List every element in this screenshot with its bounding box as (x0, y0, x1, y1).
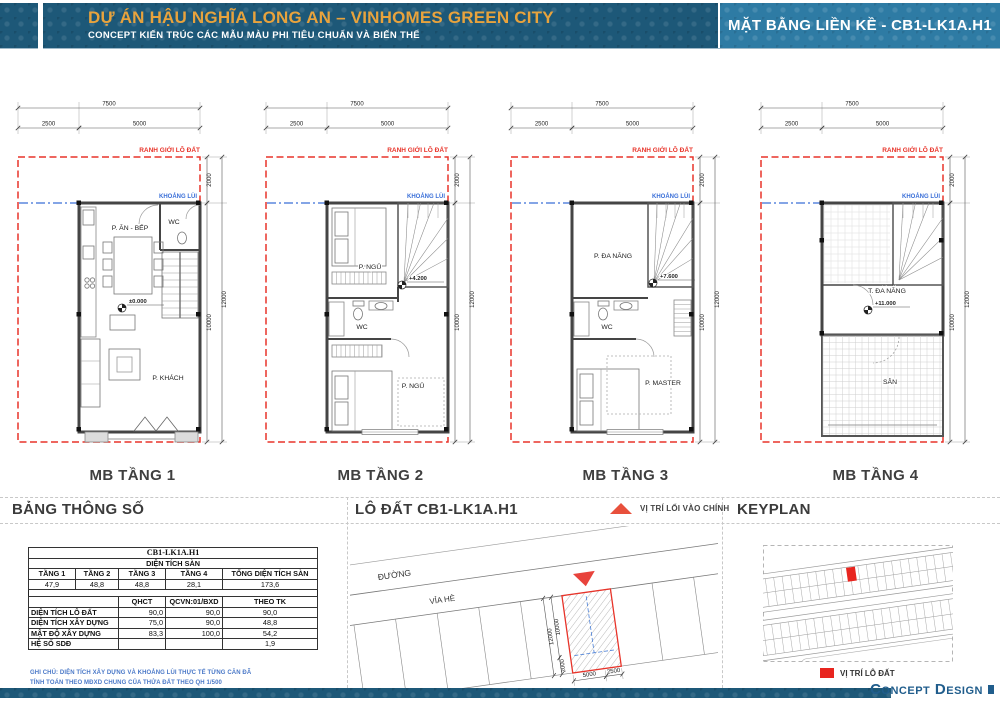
floor-plan-panel-tang1: 750025005000RANH GIỚI LÔ ĐẤTKHOẢNG LÙI20… (10, 88, 255, 500)
svg-text:P. MASTER: P. MASTER (645, 380, 681, 387)
header-corner-block (0, 3, 38, 49)
floor-plan-title-tang2: MB TẦNG 2 (258, 467, 503, 484)
table-value: 100,0 (166, 628, 223, 639)
table-value: 90,0 (223, 607, 318, 618)
svg-text:12000: 12000 (965, 290, 971, 307)
svg-text:±0.000: ±0.000 (129, 299, 147, 305)
svg-text:P. NGỦ: P. NGỦ (402, 381, 425, 390)
svg-text:12000: 12000 (715, 290, 721, 307)
table-value: 75,0 (119, 618, 166, 629)
svg-text:7500: 7500 (102, 102, 116, 108)
floor-plan-title-tang3: MB TẦNG 3 (503, 467, 748, 484)
table-row-label: DIỆN TÍCH LÔ ĐẤT (29, 607, 119, 618)
section-title-spec-table: BẢNG THÔNG SỐ (12, 501, 144, 518)
svg-text:5000: 5000 (876, 122, 890, 128)
svg-text:2500: 2500 (290, 122, 304, 128)
header-bar: DỰ ÁN HẬU NGHĨA LONG AN – VINHOMES GREEN… (43, 3, 1000, 49)
table-floor-col: TỔNG DIỆN TÍCH SÀN (223, 569, 318, 580)
table-floor-col: TẦNG 2 (76, 569, 119, 580)
svg-text:WC: WC (601, 324, 612, 331)
table-lot-id: CB1-LK1A.H1 (29, 548, 318, 559)
table-notes: GHI CHÚ: DIỆN TÍCH XÂY DỰNG VÀ KHOẢNG LÙ… (30, 668, 251, 688)
svg-text:12000: 12000 (470, 290, 476, 307)
sheet-title-block: MẶT BẰNG LIỀN KỀ - CB1-LK1A.H1 (718, 3, 1000, 48)
svg-text:RANH GIỚI LÔ ĐẤT: RANH GIỚI LÔ ĐẤT (632, 144, 693, 154)
divider-vert-1 (347, 497, 348, 688)
table-std-col: QCVN:01/BXD (166, 597, 223, 608)
svg-text:KHOẢNG LÙI: KHOẢNG LÙI (407, 193, 445, 200)
floor-plan-title-tang1: MB TẦNG 1 (10, 467, 255, 484)
svg-text:12000: 12000 (222, 290, 228, 307)
svg-text:5000: 5000 (626, 122, 640, 128)
svg-text:2000: 2000 (950, 173, 956, 187)
table-floor-col: TẦNG 3 (119, 569, 166, 580)
table-value: 83,3 (119, 628, 166, 639)
svg-text:5000: 5000 (133, 122, 147, 128)
project-subtitle: CONCEPT KIẾN TRÚC CÁC MẪU MÀU PHI TIÊU C… (88, 30, 420, 41)
lot-position-legend: VỊ TRÍ LÔ ĐẤT (820, 668, 895, 678)
svg-text:ĐƯỜNG: ĐƯỜNG (377, 568, 412, 583)
floor-plan-drawing-tang1: 750025005000RANH GIỚI LÔ ĐẤTKHOẢNG LÙI20… (10, 88, 255, 500)
floor-plan-drawing-tang4: 750025005000RANH GIỚI LÔ ĐẤTKHOẢNG LÙI20… (753, 88, 998, 500)
table-floor-area: 47,9 (29, 579, 76, 590)
svg-text:SÂN: SÂN (883, 377, 897, 386)
svg-text:5000: 5000 (381, 122, 395, 128)
svg-text:2000: 2000 (700, 173, 706, 187)
svg-text:WC: WC (168, 219, 179, 226)
svg-text:10000: 10000 (207, 313, 213, 330)
svg-text:T. ĐA NĂNG: T. ĐA NĂNG (868, 286, 906, 295)
floor-plan-panel-tang4: 750025005000RANH GIỚI LÔ ĐẤTKHOẢNG LÙI20… (753, 88, 998, 500)
lot-position-label: VỊ TRÍ LÔ ĐẤT (840, 669, 895, 678)
svg-text:RANH GIỚI LÔ ĐẤT: RANH GIỚI LÔ ĐẤT (882, 144, 943, 154)
table-row-label: MẬT ĐỘ XÂY DỰNG (29, 628, 119, 639)
svg-text:10000: 10000 (950, 313, 956, 330)
svg-text:RANH GIỚI LÔ ĐẤT: RANH GIỚI LÔ ĐẤT (387, 144, 448, 154)
footer-strip (0, 688, 891, 698)
table-row-label: HỆ SỐ SDĐ (29, 639, 119, 650)
svg-text:7500: 7500 (350, 102, 364, 108)
svg-text:+4.200: +4.200 (409, 276, 427, 282)
svg-text:2500: 2500 (535, 122, 549, 128)
table-value: 90,0 (166, 607, 223, 618)
table-floor-col: TẦNG 1 (29, 569, 76, 580)
spec-table: CB1-LK1A.H1DIỆN TÍCH SÀNTẦNG 1TẦNG 2TẦNG… (28, 547, 318, 650)
svg-text:7500: 7500 (845, 102, 859, 108)
section-title-lot: LÔ ĐẤT CB1-LK1A.H1 (355, 501, 518, 518)
table-value (166, 639, 223, 650)
svg-text:VỈA HÈ: VỈA HÈ (429, 594, 456, 607)
svg-text:P. KHÁCH: P. KHÁCH (152, 373, 183, 382)
floor-plan-drawing-tang3: 750025005000RANH GIỚI LÔ ĐẤTKHOẢNG LÙI20… (503, 88, 748, 500)
svg-text:10000: 10000 (455, 313, 461, 330)
svg-text:10000: 10000 (554, 618, 562, 636)
section-title-keyplan: KEYPLAN (737, 501, 811, 518)
table-floor-area: 48,8 (119, 579, 166, 590)
svg-text:+11.000: +11.000 (875, 301, 896, 307)
table-std-col: QHCT (119, 597, 166, 608)
svg-text:KHOẢNG LÙI: KHOẢNG LÙI (159, 193, 197, 200)
floor-plan-panel-tang2: 750025005000RANH GIỚI LÔ ĐẤTKHOẢNG LÙI20… (258, 88, 503, 500)
table-floor-area: 28,1 (166, 579, 223, 590)
svg-text:KHOẢNG LÙI: KHOẢNG LÙI (652, 193, 690, 200)
table-value (119, 639, 166, 650)
project-title: DỰ ÁN HẬU NGHĨA LONG AN – VINHOMES GREEN… (88, 8, 554, 28)
sheet-title: MẶT BẰNG LIỀN KỀ - CB1-LK1A.H1 (728, 17, 992, 34)
svg-text:12000: 12000 (547, 627, 555, 645)
divider-top (0, 497, 1000, 498)
page: DỰ ÁN HẬU NGHĨA LONG AN – VINHOMES GREEN… (0, 0, 1000, 706)
svg-text:+7.600: +7.600 (660, 274, 678, 280)
table-value: 1,9 (223, 639, 318, 650)
table-floor-col: TẦNG 4 (166, 569, 223, 580)
svg-text:2500: 2500 (785, 122, 799, 128)
entrance-legend-label: VỊ TRÍ LỐI VÀO CHÍNH (640, 504, 729, 513)
svg-text:2000: 2000 (455, 173, 461, 187)
svg-text:P. ĐA NĂNG: P. ĐA NĂNG (594, 251, 632, 260)
entrance-legend: VỊ TRÍ LỐI VÀO CHÍNH (610, 503, 729, 514)
brand-text: Concept Design (870, 681, 983, 698)
lot-site-plan: ĐƯỜNGVỈA HÈ1200010000200050002500 (350, 526, 718, 688)
table-floor-area: 173,6 (223, 579, 318, 590)
svg-text:P. NGỦ: P. NGỦ (359, 262, 382, 271)
divider-vert-2 (722, 497, 723, 688)
table-value: 54,2 (223, 628, 318, 639)
svg-text:RANH GIỚI LÔ ĐẤT: RANH GIỚI LÔ ĐẤT (139, 144, 200, 154)
divider-bottom (0, 523, 1000, 524)
table-floor-area: 48,8 (76, 579, 119, 590)
brand-logo: Concept Design (870, 681, 994, 698)
svg-text:10000: 10000 (700, 313, 706, 330)
table-value: 90,0 (119, 607, 166, 618)
keyplan-map (763, 545, 953, 662)
svg-text:2000: 2000 (559, 658, 567, 673)
svg-text:2500: 2500 (42, 122, 56, 128)
floor-plan-title-tang4: MB TẦNG 4 (753, 467, 998, 484)
svg-text:2000: 2000 (207, 173, 213, 187)
svg-text:WC: WC (356, 324, 367, 331)
table-row-label: DIỆN TÍCH XÂY DỰNG (29, 618, 119, 629)
brand-square-icon (988, 685, 994, 694)
table-value: 48,8 (223, 618, 318, 629)
svg-text:P. ĂN - BẾP: P. ĂN - BẾP (112, 222, 149, 232)
floor-plan-panel-tang3: 750025005000RANH GIỚI LÔ ĐẤTKHOẢNG LÙI20… (503, 88, 748, 500)
table-blank (29, 597, 119, 608)
table-area-header: DIỆN TÍCH SÀN (29, 558, 318, 569)
note-line-1: GHI CHÚ: DIỆN TÍCH XÂY DỰNG VÀ KHOẢNG LÙ… (30, 668, 251, 678)
lot-position-square-icon (820, 668, 834, 678)
table-std-col: THEO TK (223, 597, 318, 608)
table-value: 90,0 (166, 618, 223, 629)
svg-text:7500: 7500 (595, 102, 609, 108)
floor-plan-drawing-tang2: 750025005000RANH GIỚI LÔ ĐẤTKHOẢNG LÙI20… (258, 88, 503, 500)
note-line-2: TÍNH TOÁN THEO MĐXD CHUNG CỦA THỬA ĐẤT T… (30, 678, 251, 688)
entrance-triangle-icon (610, 503, 632, 514)
svg-text:KHOẢNG LÙI: KHOẢNG LÙI (902, 193, 940, 200)
table-spacer (29, 590, 318, 597)
